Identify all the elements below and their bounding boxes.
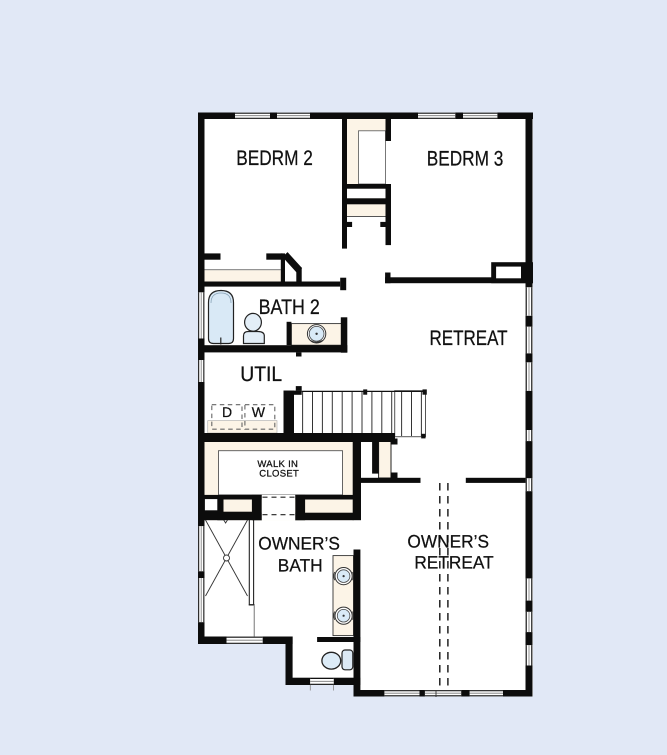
svg-text:CLOSET: CLOSET: [259, 469, 299, 480]
svg-text:UTIL: UTIL: [240, 363, 282, 386]
svg-text:RETREAT: RETREAT: [414, 553, 493, 573]
svg-text:BEDRM 2: BEDRM 2: [236, 147, 313, 170]
svg-text:OWNER’S: OWNER’S: [407, 531, 489, 551]
svg-text:BEDRM 3: BEDRM 3: [427, 148, 504, 171]
svg-text:OWNER’S: OWNER’S: [258, 534, 340, 554]
svg-text:BATH 2: BATH 2: [259, 296, 320, 319]
svg-text:RETREAT: RETREAT: [429, 327, 507, 350]
svg-text:W: W: [252, 404, 266, 420]
svg-text:D: D: [222, 404, 232, 420]
svg-text:BATH: BATH: [278, 556, 323, 576]
